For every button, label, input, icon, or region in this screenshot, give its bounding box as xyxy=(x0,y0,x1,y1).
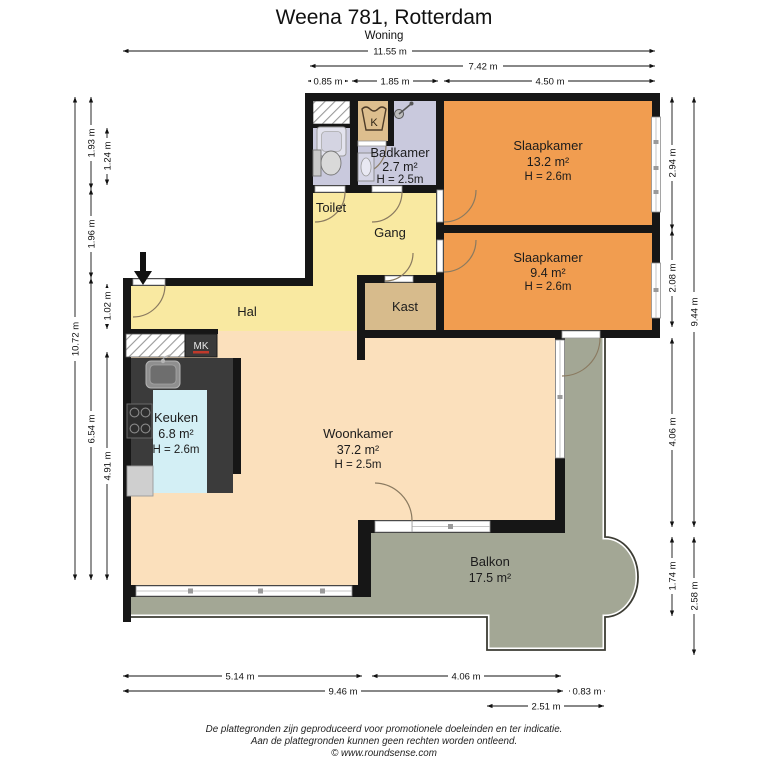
svg-text:9.46 m: 9.46 m xyxy=(328,687,357,698)
dim-bottom-offset: 0.83 m xyxy=(569,685,605,698)
svg-text:0.85 m: 0.85 m xyxy=(313,77,342,88)
page-title: Weena 781, Rotterdam xyxy=(276,6,493,29)
label-slaapkamer1-area: 13.2 m² xyxy=(527,155,569,169)
dim-top-bedrooms: 4.50 m xyxy=(444,75,655,88)
footer-line3: © www.roundsense.com xyxy=(331,748,437,759)
svg-text:4.06 m: 4.06 m xyxy=(451,672,480,683)
wall-left-upper xyxy=(305,101,313,286)
label-badkamer-height: H = 2.5m xyxy=(377,174,424,186)
dim-bottom-living-right: 4.06 m xyxy=(372,670,561,683)
dim-top-shaft: 0.85 m xyxy=(308,75,348,88)
dim-right-living: 4.06 m xyxy=(666,338,679,527)
dim-left-hal: 1.02 m xyxy=(101,284,114,329)
dim-left-total: 10.72 m xyxy=(69,97,82,580)
wall-kast-bottom xyxy=(357,330,444,338)
dim-top-bathroom: 1.85 m xyxy=(352,75,438,88)
label-badkamer-name: Badkamer xyxy=(370,145,430,160)
svg-text:4.91 m: 4.91 m xyxy=(103,451,114,480)
wall-toilet-right xyxy=(350,101,358,193)
window-bedroom1 xyxy=(652,117,661,212)
dim-bottom-left-section: 5.14 m xyxy=(123,670,362,683)
label-hal: Hal xyxy=(237,304,257,319)
wall-kast-left xyxy=(357,275,365,360)
svg-text:1.24 m: 1.24 m xyxy=(103,141,114,170)
label-woonkamer-area: 37.2 m² xyxy=(337,443,379,457)
dim-left-lower: 6.54 m xyxy=(85,278,98,580)
appliance-icon xyxy=(127,466,153,496)
label-slaapkamer1-height: H = 2.6m xyxy=(525,171,572,183)
wall-top xyxy=(305,93,660,101)
dim-bottom-total: 9.46 m xyxy=(123,685,563,698)
svg-text:2.58 m: 2.58 m xyxy=(690,581,701,610)
kitchen-counter-right xyxy=(207,390,233,493)
niche-hatch xyxy=(126,334,185,357)
kitchen-block xyxy=(127,355,233,496)
label-kast: Kast xyxy=(392,299,418,314)
svg-text:1.74 m: 1.74 m xyxy=(668,561,679,590)
wall-kitchen-right xyxy=(233,358,241,474)
wall-bedroom-divider xyxy=(444,225,660,233)
window-living-bottom-right xyxy=(412,521,490,532)
label-keuken-area: 6.8 m² xyxy=(158,427,193,441)
svg-text:0.83 m: 0.83 m xyxy=(572,687,601,698)
shaft-hatch xyxy=(313,101,350,124)
svg-text:7.42 m: 7.42 m xyxy=(468,62,497,73)
dim-right-bedroom2: 2.08 m xyxy=(666,230,679,327)
label-keuken-name: Keuken xyxy=(154,410,198,425)
svg-text:2.94 m: 2.94 m xyxy=(668,148,679,177)
cooktop-icon xyxy=(127,404,152,438)
dim-left-middle: 1.96 m xyxy=(85,189,98,278)
label-toilet: Toilet xyxy=(316,200,347,215)
label-woonkamer-height: H = 2.5m xyxy=(335,459,382,471)
label-gang: Gang xyxy=(374,225,406,240)
toilet-icon xyxy=(313,150,341,176)
meter-cupboard-mark xyxy=(193,351,209,354)
svg-text:1.02 m: 1.02 m xyxy=(103,291,114,320)
label-slaapkamer2-name: Slaapkamer xyxy=(513,250,583,265)
dim-right-total: 9.44 m xyxy=(688,97,701,527)
dim-bottom-balcony: 2.51 m xyxy=(487,700,604,713)
label-badkamer-area: 2.7 m² xyxy=(382,160,417,174)
svg-text:4.50 m: 4.50 m xyxy=(535,77,564,88)
washer-symbol-label: K xyxy=(370,117,378,129)
svg-text:1.96 m: 1.96 m xyxy=(87,219,98,248)
svg-text:9.44 m: 9.44 m xyxy=(690,297,701,326)
footer-line2: Aan de plattegronden kunnen geen rechten… xyxy=(250,736,517,747)
wall-hal-bottom xyxy=(123,329,218,334)
wall-bedroom2-bottom xyxy=(436,330,660,338)
footer-line1: De plattegronden zijn geproduceerd voor … xyxy=(206,724,563,735)
footer: De plattegronden zijn geproduceerd voor … xyxy=(206,724,563,759)
label-slaapkamer1-name: Slaapkamer xyxy=(513,138,583,153)
svg-text:2.08 m: 2.08 m xyxy=(668,263,679,292)
meter-cupboard-label: MK xyxy=(194,341,209,352)
svg-text:11.55 m: 11.55 m xyxy=(373,47,407,58)
kitchen-floor xyxy=(153,390,207,493)
dim-left-kitchen: 4.91 m xyxy=(101,352,114,580)
dim-left-top: 1.93 m xyxy=(85,97,98,189)
label-balkon-name: Balkon xyxy=(470,554,510,569)
label-woonkamer-name: Woonkamer xyxy=(323,426,394,441)
floorplan-canvas: Weena 781, Rotterdam Woning xyxy=(0,0,768,768)
page-subtitle: Woning xyxy=(365,30,404,42)
svg-text:1.93 m: 1.93 m xyxy=(87,128,98,157)
svg-text:1.85 m: 1.85 m xyxy=(380,77,409,88)
svg-text:6.54 m: 6.54 m xyxy=(87,414,98,443)
meter-cupboard: MK xyxy=(185,334,217,357)
floorplan-page: Weena 781, Rotterdam Woning xyxy=(0,0,768,768)
svg-text:10.72 m: 10.72 m xyxy=(71,322,82,356)
svg-text:4.06 m: 4.06 m xyxy=(668,417,679,446)
svg-text:2.51 m: 2.51 m xyxy=(531,702,560,713)
window-bedroom2 xyxy=(652,263,661,318)
label-slaapkamer2-height: H = 2.6m xyxy=(525,281,572,293)
label-balkon-area: 17.5 m² xyxy=(469,571,511,585)
dim-right-balcony: 2.58 m xyxy=(688,537,701,655)
window-living-bottom-left xyxy=(136,586,352,596)
dim-right-bedroom1: 2.94 m xyxy=(666,97,679,230)
dim-top-total: 11.55 m xyxy=(123,45,655,58)
label-slaapkamer2-area: 9.4 m² xyxy=(530,266,565,280)
svg-text:5.14 m: 5.14 m xyxy=(225,672,254,683)
wall-washer-closet-right xyxy=(388,101,394,146)
label-keuken-height: H = 2.6m xyxy=(153,444,200,456)
dim-left-toilet: 1.24 m xyxy=(101,128,114,185)
window-living-right xyxy=(556,340,565,458)
dim-right-bay: 1.74 m xyxy=(666,537,679,616)
dim-top-right-section: 7.42 m xyxy=(310,60,655,73)
